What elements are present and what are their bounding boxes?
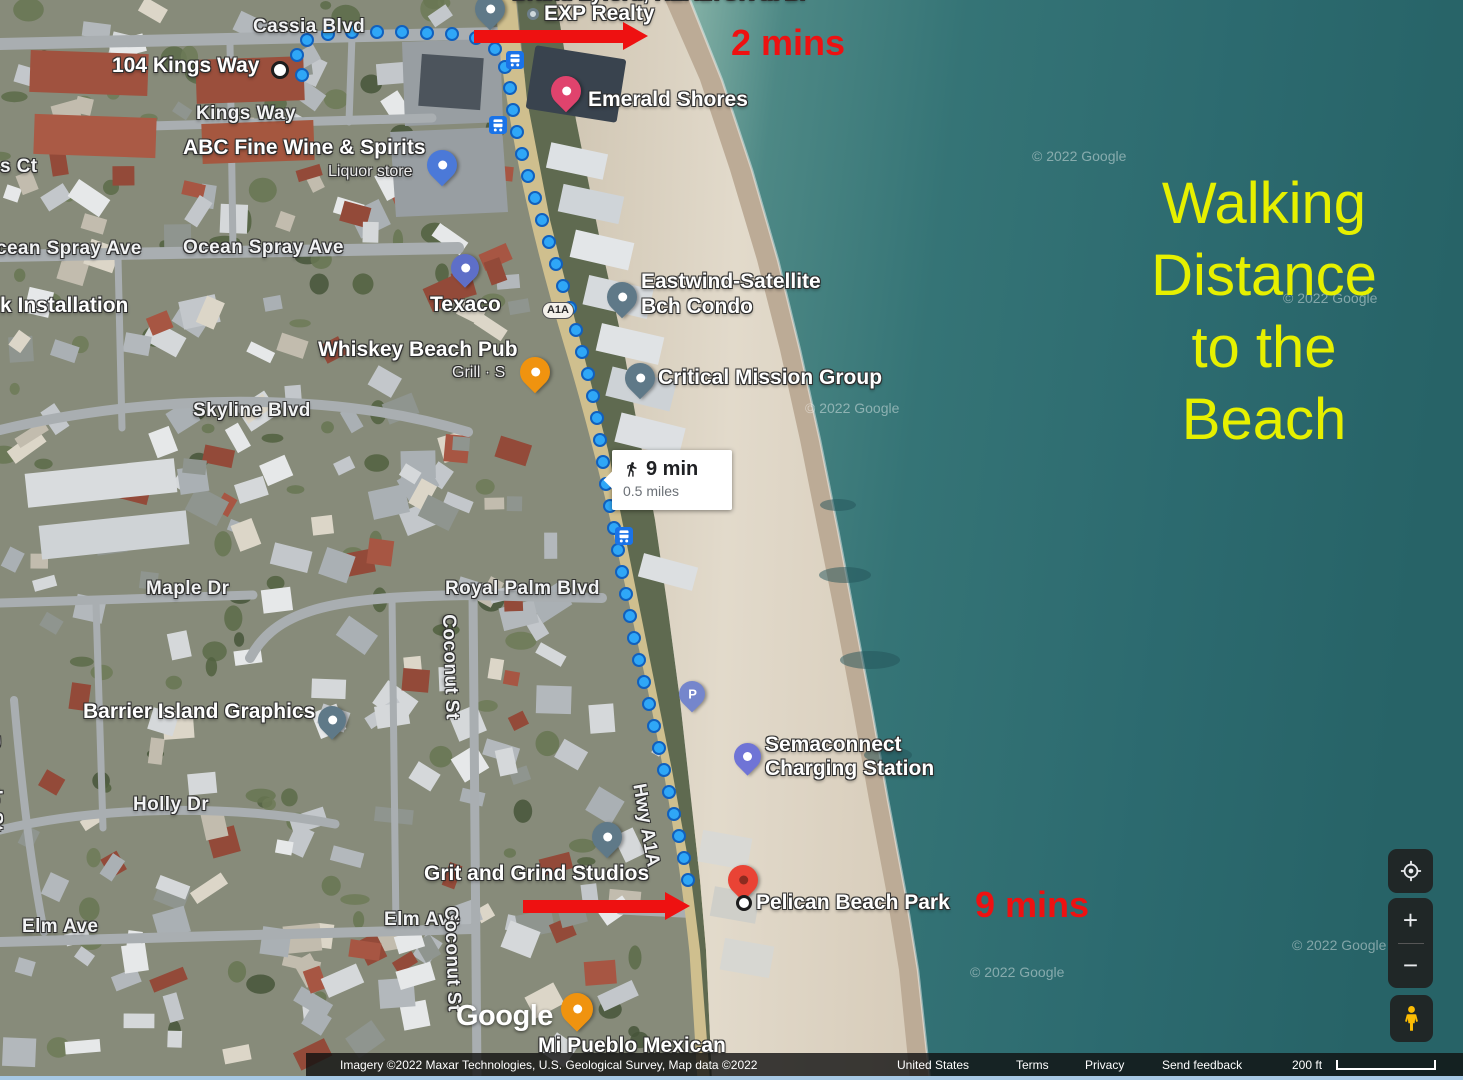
route-dot — [593, 433, 607, 447]
route-dot — [662, 785, 676, 799]
imagery-attribution: Imagery ©2022 Maxar Technologies, U.S. G… — [340, 1058, 757, 1072]
map-label-abc-fine-wine[interactable]: ABC Fine Wine & Spirits — [183, 136, 426, 160]
mi-pueblo-pin-glyph — [573, 1005, 582, 1014]
route-dot — [619, 587, 633, 601]
texaco-pin[interactable] — [451, 254, 479, 288]
map-label-coconut-st-n: Coconut St — [437, 614, 463, 720]
route-dot — [590, 411, 604, 425]
route-dot — [596, 455, 610, 469]
map-label-pelican-beach-park[interactable]: Pelican Beach Park — [756, 891, 950, 915]
whiskey-pub-pin[interactable] — [520, 357, 550, 393]
route-dot — [503, 81, 517, 95]
texaco-pin-glyph — [461, 264, 470, 273]
route-dot — [652, 741, 666, 755]
texaco-pin-shape — [445, 248, 485, 288]
google-watermark: © 2022 Google — [1032, 148, 1126, 164]
window-edge-strip — [0, 1076, 1463, 1080]
map-label-s-ct: s Ct — [0, 156, 38, 178]
pelican-beach-pin-glyph — [739, 876, 748, 885]
parking-pin[interactable]: P — [679, 681, 705, 712]
route-dot — [677, 851, 691, 865]
route-dot — [632, 653, 646, 667]
map-label-emerald-shores[interactable]: Emerald Shores — [588, 88, 748, 112]
exp-realty-pin[interactable] — [475, 0, 505, 30]
route-dot — [611, 543, 625, 557]
walking-distance-caption: Walking Distance to the Beach — [1146, 168, 1382, 456]
map-label-eastwind-line2[interactable]: Bch Condo — [641, 295, 753, 319]
map-label-104-kings-way[interactable]: 104 Kings Way — [112, 54, 259, 78]
map-label-holly-dr: Holly Dr — [133, 794, 209, 816]
barrier-island-pin[interactable] — [318, 706, 346, 740]
route-dot — [549, 257, 563, 271]
parking-pin-glyph: P — [688, 687, 697, 702]
caption-line: to the — [1146, 312, 1382, 384]
route-dot — [581, 367, 595, 381]
critical-mission-pin-shape — [619, 357, 661, 399]
abc-store-pin-glyph — [438, 161, 447, 170]
map-label-k-installation: k Installation — [0, 294, 128, 318]
zoom-out-button[interactable]: − — [1389, 944, 1433, 988]
route-dot — [681, 873, 695, 887]
google-watermark: © 2022 Google — [970, 964, 1064, 980]
caption-line: Walking — [1146, 168, 1382, 240]
emerald-shores-pin-glyph — [562, 87, 571, 96]
exp-realty-pin-glyph — [486, 5, 495, 14]
privacy-link[interactable]: Privacy — [1085, 1058, 1124, 1072]
route-dot — [647, 719, 661, 733]
pegman-icon — [1403, 1005, 1420, 1033]
route-dot — [642, 697, 656, 711]
walking-route-arrow — [523, 900, 666, 913]
route-dot — [627, 631, 641, 645]
route-dot — [445, 27, 459, 41]
abc-store-pin-shape — [421, 144, 463, 186]
google-logo: Google — [456, 1000, 553, 1033]
terms-link[interactable]: Terms — [1016, 1058, 1049, 1072]
map-label-grill-s: Grill · S — [452, 364, 505, 382]
my-location-icon — [1400, 860, 1422, 882]
map-label-semaconnect-line1[interactable]: Semaconnect — [765, 733, 902, 757]
eastwind-pin-shape — [601, 276, 643, 318]
bus-stop-icon[interactable] — [506, 51, 524, 69]
pelican-point-marker[interactable] — [736, 895, 752, 911]
grit-grind-pin-shape — [586, 816, 628, 858]
walk-duration: 9 min — [646, 458, 698, 481]
route-dot — [637, 675, 651, 689]
route-dot — [420, 26, 434, 40]
route-dot — [623, 609, 637, 623]
route-dot — [515, 147, 529, 161]
send-feedback-link[interactable]: Send feedback — [1162, 1058, 1242, 1072]
emerald-shores-pin-shape — [545, 70, 587, 112]
semaconnect-pin-glyph — [743, 752, 752, 761]
caption-line: Beach — [1146, 384, 1382, 456]
route-dot — [528, 191, 542, 205]
route-dot — [290, 48, 304, 62]
route-dot — [488, 42, 502, 56]
route-dot — [615, 565, 629, 579]
exp-realty-pin-shape — [469, 0, 511, 30]
map-label-liquor-store: Liquor store — [328, 163, 413, 181]
google-maps-screenshot: 9 min 0.5 miles A1A Walking Distance to … — [0, 0, 1463, 1080]
route-dot — [510, 125, 524, 139]
place-circle-icon — [527, 8, 539, 20]
google-watermark: © 2022 Google — [805, 400, 899, 416]
mi-pueblo-pin[interactable] — [561, 993, 593, 1032]
walk-time-label: 9 mins — [975, 884, 1089, 926]
route-dot — [295, 68, 309, 82]
bus-stop-icon[interactable] — [615, 527, 633, 545]
map-label-semaconnect-line2[interactable]: Charging Station — [765, 757, 934, 781]
a1a-route-shield: A1A — [542, 302, 574, 319]
abc-store-pin[interactable] — [427, 150, 457, 186]
route-dot — [370, 25, 384, 39]
critical-mission-pin-glyph — [636, 374, 645, 383]
route-dot — [535, 213, 549, 227]
eastwind-pin[interactable] — [607, 282, 637, 318]
attribution-country: United States — [897, 1058, 969, 1072]
walk-distance: 0.5 miles — [612, 481, 732, 499]
map-label-elm-ave-w: Elm Ave — [22, 916, 98, 938]
walk-time-label: 2 mins — [731, 22, 845, 64]
arrow-head — [623, 22, 648, 50]
bus-stop-icon[interactable] — [489, 116, 507, 134]
caption-line: Distance — [1146, 240, 1382, 312]
emerald-shores-pin[interactable] — [551, 76, 581, 112]
route-dot — [672, 829, 686, 843]
semaconnect-pin[interactable] — [734, 743, 761, 776]
eastwind-pin-glyph — [618, 293, 627, 302]
map-label-texaco[interactable]: Texaco — [430, 293, 501, 317]
route-dot — [521, 169, 535, 183]
barrier-island-pin-shape — [312, 700, 352, 740]
map-label-skyline-blvd: Skyline Blvd — [193, 400, 311, 422]
critical-mission-pin[interactable] — [625, 363, 655, 399]
map-label-royal-palm-blvd: Royal Palm Blvd — [445, 578, 600, 600]
grit-grind-pin-glyph — [603, 833, 612, 842]
map-label-coconut-st-s: Coconut St — [439, 906, 465, 1012]
walking-person-icon — [623, 461, 640, 478]
grit-grind-pin[interactable] — [592, 822, 622, 858]
whiskey-pub-pin-shape — [514, 351, 556, 393]
walking-route-tooltip[interactable]: 9 min 0.5 miles — [612, 450, 732, 510]
map-label-maple-dr: Maple Dr — [146, 578, 229, 600]
route-dot — [586, 389, 600, 403]
route-start-marker[interactable] — [271, 61, 289, 79]
zoom-control: + − — [1388, 898, 1433, 988]
map-label-kings-way: Kings Way — [196, 103, 296, 125]
pegman-button[interactable] — [1390, 995, 1433, 1042]
route-dot — [542, 235, 556, 249]
map-canvas[interactable] — [0, 0, 1463, 1080]
mi-pueblo-pin-shape — [554, 986, 599, 1031]
route-dot — [395, 25, 409, 39]
whiskey-pub-pin-glyph — [531, 368, 540, 377]
semaconnect-pin-shape — [728, 737, 766, 775]
scale-bar — [1336, 1060, 1436, 1070]
map-label-cassia-blvd: Cassia Blvd — [253, 16, 365, 38]
zoom-in-button[interactable]: + — [1389, 899, 1433, 943]
map-label-grit-and-grind-studios[interactable]: Grit and Grind Studios — [424, 862, 649, 886]
map-label-ocean-spray-ave-w: cean Spray Ave — [0, 238, 142, 260]
map-label-eastwind-line1[interactable]: Eastwind-Satellite — [641, 270, 821, 294]
scale-label: 200 ft — [1292, 1058, 1322, 1072]
route-dot — [556, 279, 570, 293]
map-label-whiskey-beach-pub[interactable]: Whiskey Beach Pub — [318, 338, 518, 362]
route-dot — [657, 763, 671, 777]
map-label-critical-mission-group[interactable]: Critical Mission Group — [658, 366, 882, 390]
route-dot — [506, 103, 520, 117]
route-dot — [667, 807, 681, 821]
arrow-head — [665, 892, 690, 920]
route-dot — [569, 323, 583, 337]
map-label-barrier-island-graphics[interactable]: Barrier Island Graphics — [83, 700, 315, 724]
walking-route-arrow — [474, 30, 624, 43]
map-label-ocean-spray-ave: Ocean Spray Ave — [183, 237, 344, 259]
barrier-island-pin-glyph — [328, 716, 337, 725]
google-watermark: © 2022 Google — [1292, 937, 1386, 953]
my-location-button[interactable] — [1388, 849, 1433, 893]
parking-pin-shape: P — [674, 676, 711, 713]
route-dot — [575, 345, 589, 359]
